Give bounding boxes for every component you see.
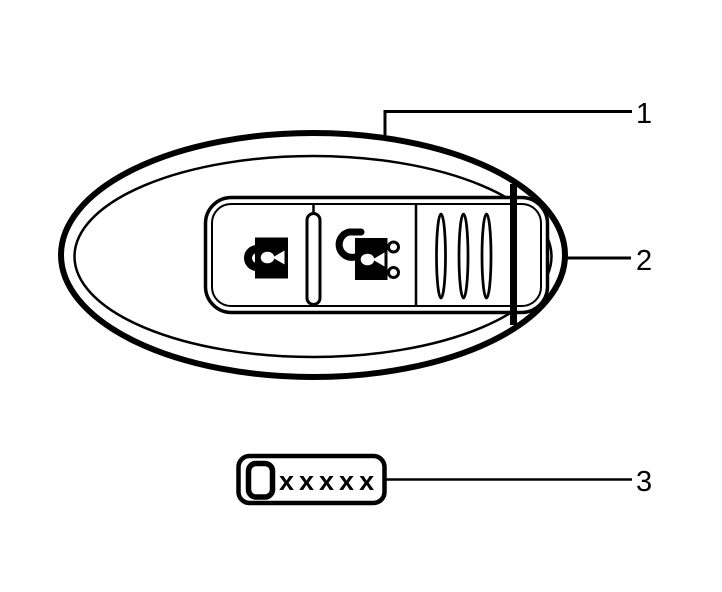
indicator-dot-icon	[389, 242, 399, 252]
unlock-keyhole-circle	[361, 254, 375, 266]
figure-canvas: 1 2 xxxxx 3	[0, 0, 722, 592]
button-divider-pill	[307, 214, 320, 305]
indicator-dot-icon	[389, 268, 399, 278]
callout-2-label: 2	[636, 245, 652, 277]
grip-ridges	[437, 214, 492, 298]
key-fob-diagram: 1 2 xxxxx 3	[0, 0, 722, 592]
callout-1-label: 1	[636, 98, 652, 130]
callout-2: 2	[563, 245, 652, 277]
grip-ridge-icon	[459, 214, 468, 298]
part-label-text: xxxxx	[279, 466, 379, 496]
callout-1: 1	[385, 98, 652, 139]
grip-ridge-icon	[482, 214, 491, 298]
part-label-symbol-icon	[249, 464, 273, 498]
callout-1-leader-line	[385, 112, 632, 140]
part-label-box: xxxxx 3	[239, 456, 653, 503]
lock-keyhole-circle	[261, 252, 275, 264]
grip-ridge-icon	[437, 214, 446, 298]
callout-3-label: 3	[636, 466, 652, 498]
